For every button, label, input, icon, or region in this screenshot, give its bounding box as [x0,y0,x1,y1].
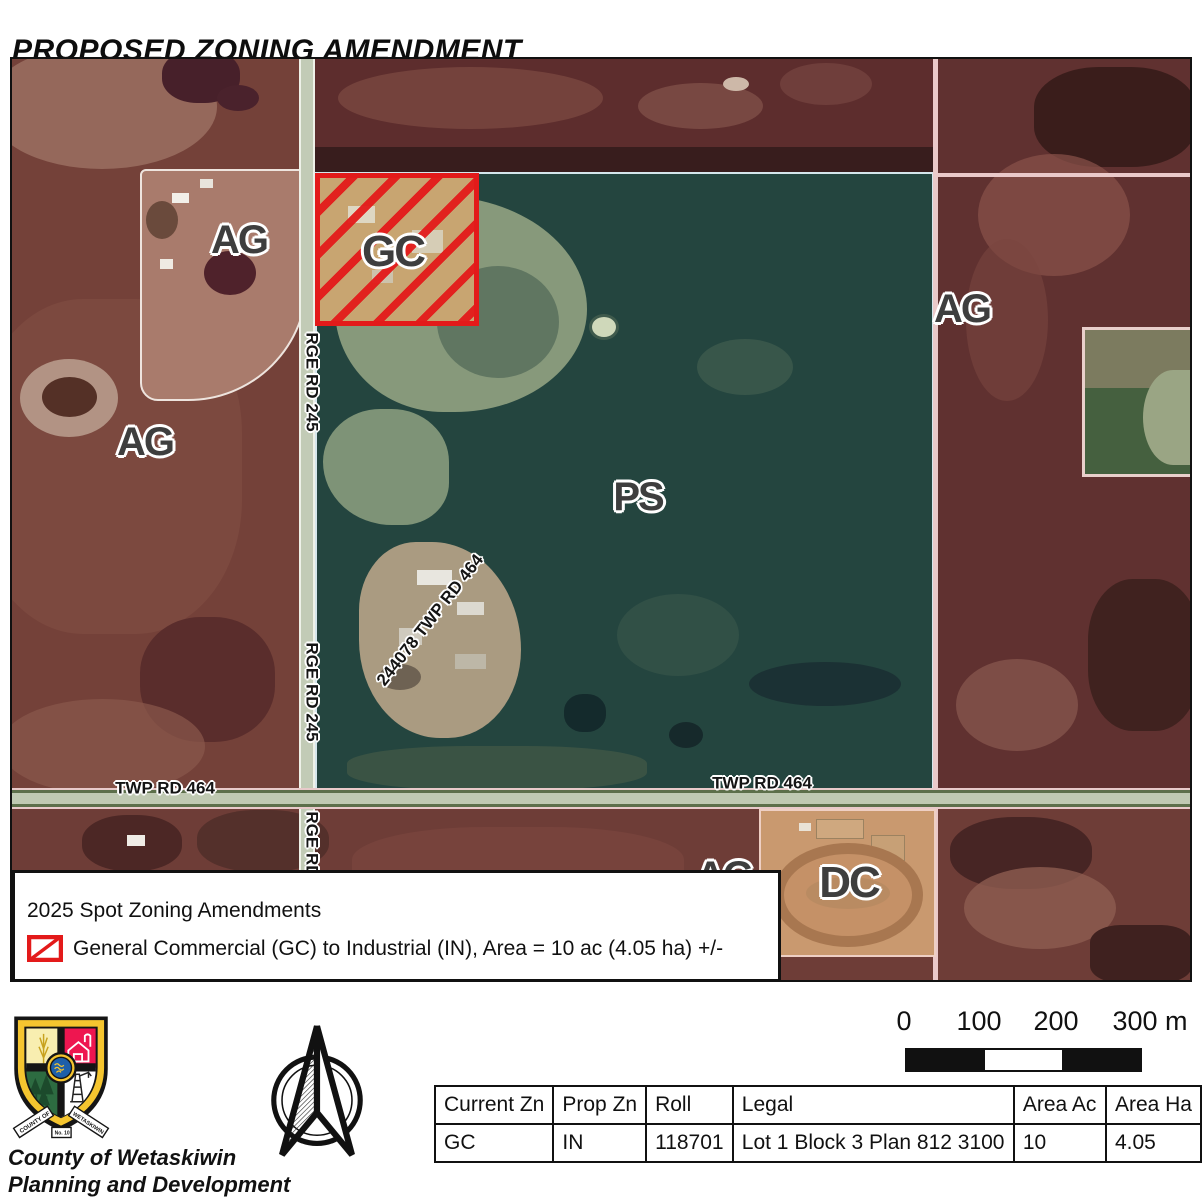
terrain-blob [1143,370,1192,465]
zone-label: AG [211,220,267,260]
zone-label: AG [934,289,990,329]
road-label: RGE RD 245 [304,642,321,741]
table-row: GCIN118701Lot 1 Block 3 Plan 812 3100104… [435,1124,1201,1162]
org-caption-line2: Planning and Development [8,1171,290,1198]
zoning-table: Current ZnProp ZnRollLegalArea AcArea Ha… [434,1085,1202,1163]
scale-tick-label: 200 [1033,1006,1078,1037]
terrain-blob [338,67,603,129]
table-header-cell: Prop Zn [553,1086,646,1124]
legend-item-label: General Commercial (GC) to Industrial (I… [73,937,723,961]
terrain-blob [217,85,259,111]
org-caption: County of Wetaskiwin Planning and Develo… [8,1144,290,1198]
building [160,259,173,269]
farmstead-parcel [140,169,308,401]
legend-gc-hatch-swatch [27,935,63,962]
industrial-site [359,542,521,738]
tree-clump [1090,925,1192,982]
terrain-blob [697,339,793,395]
table-header-cell: Area Ha [1106,1086,1201,1124]
scale-bar: 0100200300 m [893,1006,1199,1072]
building [457,602,484,615]
road-label: TWP RD 464 [712,775,812,792]
map-legend: 2025 Spot Zoning Amendments General Comm… [12,870,781,982]
page: PROPOSED ZONING AMENDMENT [0,0,1202,1201]
pond [749,662,901,706]
table-header-row: Current ZnProp ZnRollLegalArea AcArea Ha [435,1086,1201,1124]
table-header-cell: Area Ac [1014,1086,1106,1124]
scale-tick-label: 100 [956,1006,1001,1037]
scale-segment [1064,1050,1140,1070]
pond [669,722,703,748]
tree-clump [146,201,178,239]
table-cell: IN [553,1124,646,1162]
region-top-strip [308,59,938,172]
scale-tick-label: 300 m [1112,1006,1187,1037]
zone-label: DC [819,861,879,905]
table-cell: 10 [1014,1124,1106,1162]
parcel-inset-natural [1082,327,1192,477]
terrain-blob [617,594,739,676]
scale-segment [907,1050,983,1070]
scale-tick-label: 0 [896,1006,911,1037]
table-header-cell: Legal [733,1086,1014,1124]
zone-label: GC [362,230,424,274]
org-caption-line1: County of Wetaskiwin [8,1144,290,1171]
building [455,654,486,669]
county-of-wetaskiwin-logo: COUNTY OF WETASKIWIN No. 10 [6,1010,116,1144]
logo-ribbon-number-text: No. 10 [55,1131,70,1137]
north-arrow-icon [260,1020,374,1162]
parcel-boundary-line [938,173,1192,177]
tree-band [308,147,938,172]
clearing [323,409,449,525]
building [799,823,811,831]
road-label: RGE RD 245 [304,332,321,431]
table-cell: 4.05 [1106,1124,1201,1162]
scale-segment [983,1050,1063,1070]
building [816,819,864,839]
terrain-blob [42,377,97,417]
legend-title: 2025 Spot Zoning Amendments [27,899,321,923]
building [200,179,213,188]
table-cell: 118701 [646,1124,733,1162]
zone-label: AG [117,422,173,462]
road-label: TWP RD 464 [115,780,215,797]
scale-bar-graphic [905,1048,1142,1072]
terrain-blob [638,83,763,129]
building [172,193,189,203]
building [127,835,145,846]
terrain-blob [780,63,872,105]
terrain-blob [956,659,1078,751]
table-header-cell: Current Zn [435,1086,553,1124]
table-cell: Lot 1 Block 3 Plan 812 3100 [733,1124,1014,1162]
table-header-cell: Roll [646,1086,733,1124]
zone-label: PS [613,477,662,517]
terrain-blob [347,746,647,790]
map-canvas: AGAGGCPSAGAGDC RGE RD 245RGE RD 245RGE R… [10,57,1192,982]
pond [564,694,606,732]
table-cell: GC [435,1124,553,1162]
tree-clump [1034,67,1192,167]
pond [723,77,749,91]
pond [589,314,619,340]
tree-clump [1088,579,1192,731]
